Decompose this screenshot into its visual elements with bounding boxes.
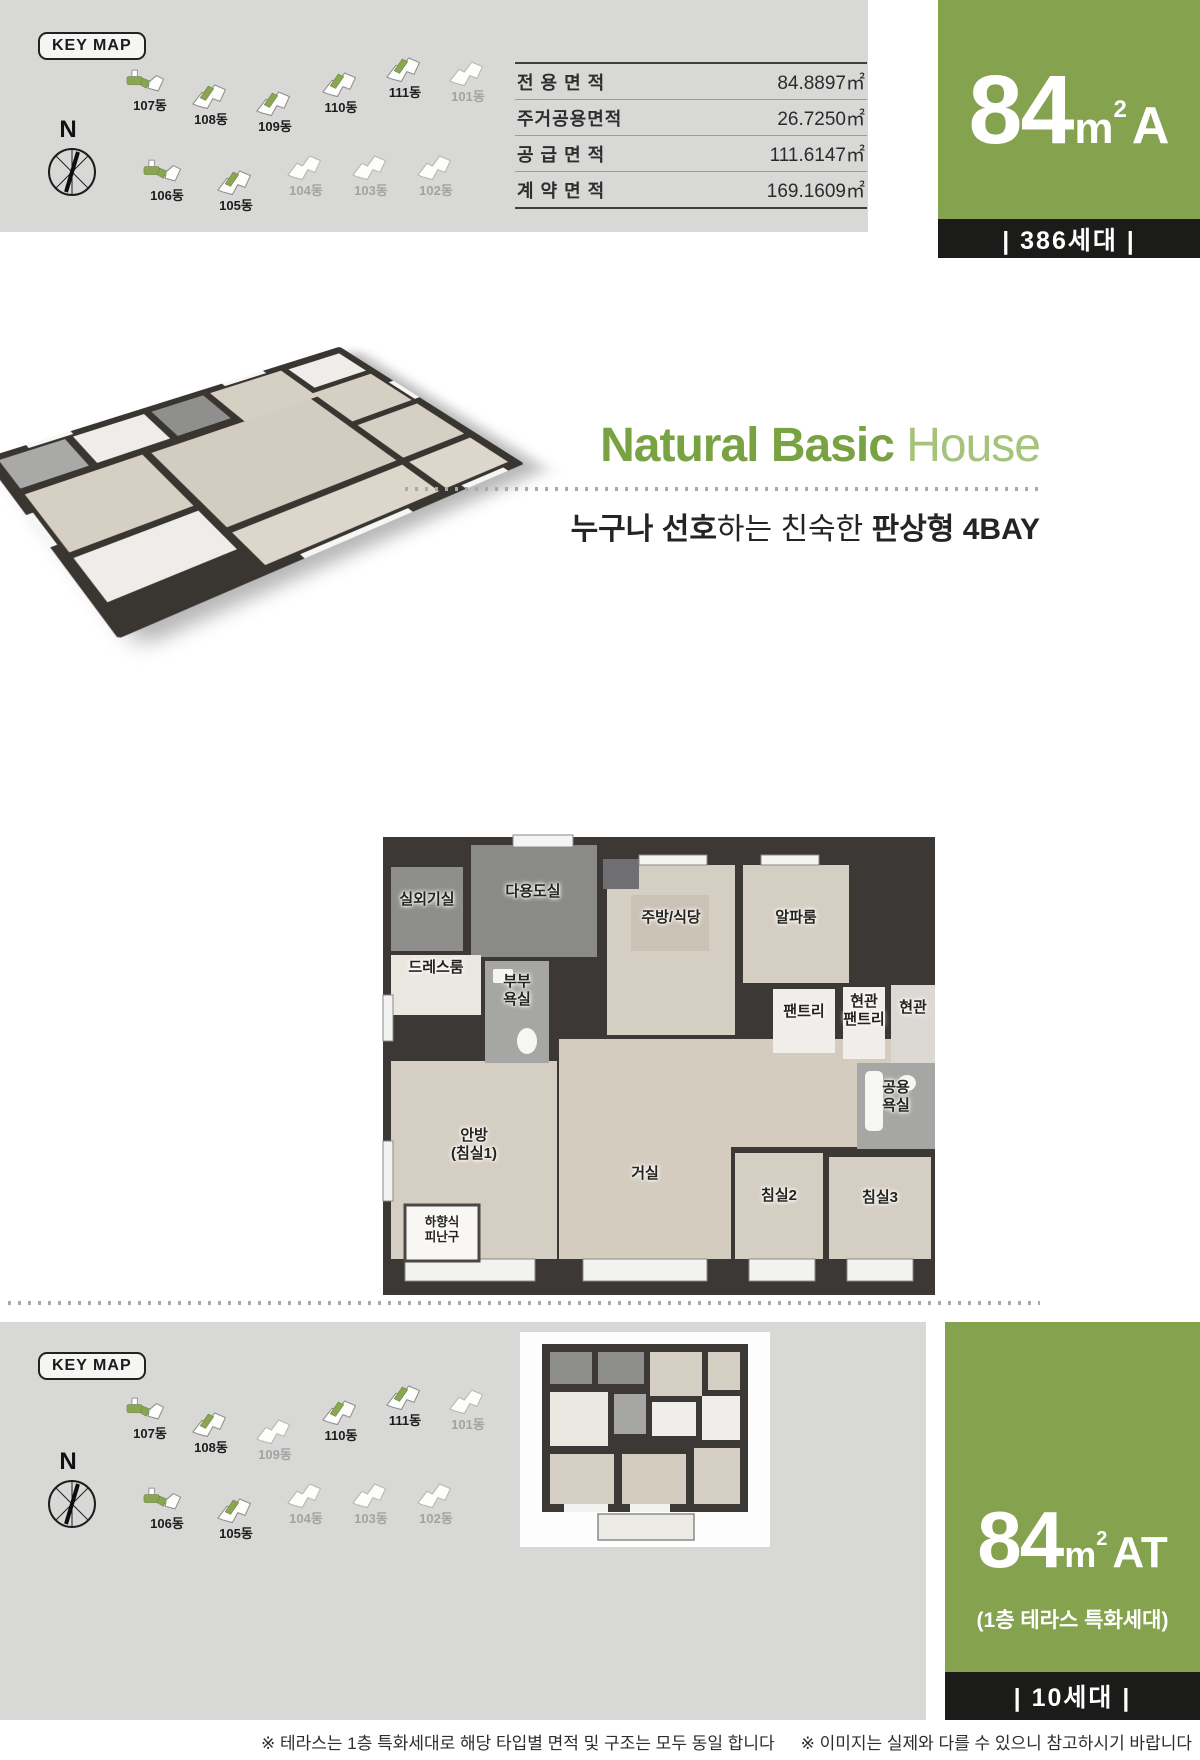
isometric-floorplan-graphic [0,347,524,639]
area-table-value: 169.1609㎡ [767,176,865,203]
building-footprint-icon [441,53,495,91]
building-footprint-icon [409,1475,463,1513]
building-footprint-icon [184,1404,238,1442]
building-label: 105동 [204,199,268,212]
hero-subtitle-regular: 하는 친숙한 [717,513,872,546]
unit-sup2: 2 [1114,98,1127,122]
keymap-building: 107동 [118,1390,182,1440]
terrace-unit-miniplan-graphic [520,1332,770,1547]
unit-type-letter: A [1132,100,1170,152]
building-label: 108동 [179,113,243,126]
area-table-label: 전 용 면 적 [517,69,605,95]
hero-title-strong: Natural Basic [600,419,894,472]
building-label: 103동 [339,1512,403,1525]
room-label: 다용도실 [469,883,597,901]
keymap-building: 108동 [179,1404,243,1454]
building-label: 105동 [204,1527,268,1540]
building-footprint-icon [140,1480,194,1518]
building-label: 103동 [339,184,403,197]
footnote-terrace: ※ 테라스는 1층 특화세대로 해당 타입별 면적 및 구조는 모두 동일 합니… [261,1729,775,1754]
unit-size: 84 [969,61,1073,158]
building-footprint-icon [279,147,333,185]
building-label: 101동 [436,1418,500,1431]
brochure-page: KEY MAP N 107동 [0,0,1200,1760]
area-table-value: 84.8897㎡ [777,68,865,95]
hero-title: Natural Basic House [405,422,1040,470]
building-footprint-icon [409,147,463,185]
keymap-building: 105동 [204,162,268,212]
dotted-divider-top [405,487,1040,491]
building-footprint-icon [184,76,238,114]
unit-m: m [1074,107,1113,151]
keymap-building: 108동 [179,76,243,126]
room-label: 현관 [885,999,941,1017]
room-label: 드레스룸 [381,959,491,977]
building-label: 110동 [309,101,373,114]
building-label: 102동 [404,184,468,197]
keymap-building: 111동 [373,1377,437,1427]
building-footprint-icon [248,83,302,121]
area-table-label: 계 약 면 적 [517,177,605,203]
area-table-label: 주거공용면적 [517,105,622,131]
keymap-buildings: 107동 108동 [80,40,520,225]
building-label: 104동 [274,184,338,197]
building-footprint-icon [209,1490,263,1528]
unit-type-letter: AT [1112,1531,1167,1575]
keymap-building: 111동 [373,49,437,99]
building-footprint-icon [441,1381,495,1419]
hero-subtitle-bold1: 누구나 선호 [571,513,717,546]
room-label: 하향식 피난구 [405,1215,479,1245]
room-label: 실외기실 [391,891,463,909]
terrace-type-badge: 84 m 2 AT (1층 테라스 특화세대) [945,1322,1200,1672]
building-label: 107동 [118,1427,182,1440]
building-footprint-icon [279,1475,333,1513]
room-label: 거실 [559,1165,731,1183]
keymap-building: 107동 [118,62,182,112]
footnotes: ※ 테라스는 1층 특화세대로 해당 타입별 면적 및 구조는 모두 동일 합니… [212,1729,1192,1754]
area-table-value: 111.6147㎡ [770,140,865,167]
keymap-building: 103동 [339,1475,403,1525]
building-label: 102동 [404,1512,468,1525]
unit-type-badge: 84 m 2 A [938,0,1200,219]
area-table-row: 전 용 면 적 84.8897㎡ [515,64,867,100]
building-label: 106동 [135,1517,199,1530]
keymap-building: 102동 [404,147,468,197]
keymap-building: 102동 [404,1475,468,1525]
area-table: 전 용 면 적 84.8897㎡ 주거공용면적 26.7250㎡ 공 급 면 적… [515,62,867,209]
building-footprint-icon [314,1392,368,1430]
area-table-label: 공 급 면 적 [517,141,605,167]
keymap-building: 109동 [243,83,307,133]
building-footprint-icon [378,49,432,87]
hero-subtitle-bold2: 판상형 4BAY [872,513,1040,546]
building-footprint-icon [209,162,263,200]
keymap-building: 106동 [135,152,199,202]
keymap-building: 104동 [274,1475,338,1525]
room-label: 안방 (침실1) [391,1127,557,1162]
building-footprint-icon [344,1475,398,1513]
building-label: 108동 [179,1441,243,1454]
building-label: 107동 [118,99,182,112]
building-label: 101동 [436,90,500,103]
keymap-building: 110동 [309,64,373,114]
building-label: 109동 [243,120,307,133]
room-label: 공용 욕실 [857,1079,935,1114]
keymap-building: 101동 [436,1381,500,1431]
households-count: | 10세대 | [1014,1678,1132,1714]
area-table-value: 26.7250㎡ [777,104,865,131]
keymap-building: 104동 [274,147,338,197]
unit-size: 84 [977,1500,1062,1580]
building-footprint-icon [378,1377,432,1415]
building-label: 109동 [243,1448,307,1461]
keymap-building: 101동 [436,53,500,103]
area-table-row: 주거공용면적 26.7250㎡ [515,100,867,136]
keymap-building: 109동 [243,1411,307,1461]
keymap-building: 105동 [204,1490,268,1540]
building-footprint-icon [248,1411,302,1449]
households-count: | 386세대 | [1002,221,1136,257]
unit-sup2: 2 [1096,1529,1107,1549]
terrace-type-title: 84 m 2 AT [977,1500,1168,1580]
room-label: 침실3 [829,1189,931,1207]
unit-type-title: 84 m 2 A [969,61,1170,158]
keymap-building: 103동 [339,147,403,197]
unit-m: m [1064,1537,1096,1573]
bottom-keymap-panel: KEY MAP N 107동 [0,1322,926,1720]
room-label: 주방/식당 [607,909,735,927]
keymap-buildings: 107동 108동 [80,1368,520,1553]
hero-title-light: House [894,419,1040,472]
keymap-building: 106동 [135,1480,199,1530]
hero-subtitle: 누구나 선호하는 친숙한 판상형 4BAY [405,504,1040,548]
room-label: 부부 욕실 [485,973,549,1008]
building-label: 104동 [274,1512,338,1525]
building-label: 111동 [373,1414,437,1427]
dotted-divider-bottom [8,1301,1040,1305]
building-label: 106동 [135,189,199,202]
households-bar: | 386세대 | [938,219,1200,258]
building-footprint-icon [123,1390,177,1428]
terrace-type-subtitle: (1층 테라스 특화세대) [977,1604,1169,1634]
footnote-image-disclaimer: ※ 이미지는 실제와 다를 수 있으니 참고하시기 바랍니다 [801,1729,1192,1754]
top-keymap-panel: KEY MAP N 107동 [0,0,868,232]
room-label: 침실2 [735,1187,823,1205]
building-footprint-icon [314,64,368,102]
room-label: 알파룸 [743,909,849,927]
building-footprint-icon [344,147,398,185]
building-footprint-icon [123,62,177,100]
households-bar: | 10세대 | [945,1672,1200,1720]
area-table-row: 공 급 면 적 111.6147㎡ [515,136,867,172]
isometric-floorplan [0,347,524,639]
keymap-building: 110동 [309,1392,373,1442]
terrace-unit-miniplan [520,1332,770,1547]
area-table-row: 계 약 면 적 169.1609㎡ [515,172,867,207]
floorplan-2d: 실외기실 다용도실 주방/식당 알파룸 드레스룸 부부 욕실 팬트리 현관 팬트… [345,745,935,1300]
building-label: 110동 [309,1429,373,1442]
building-footprint-icon [140,152,194,190]
building-label: 111동 [373,86,437,99]
